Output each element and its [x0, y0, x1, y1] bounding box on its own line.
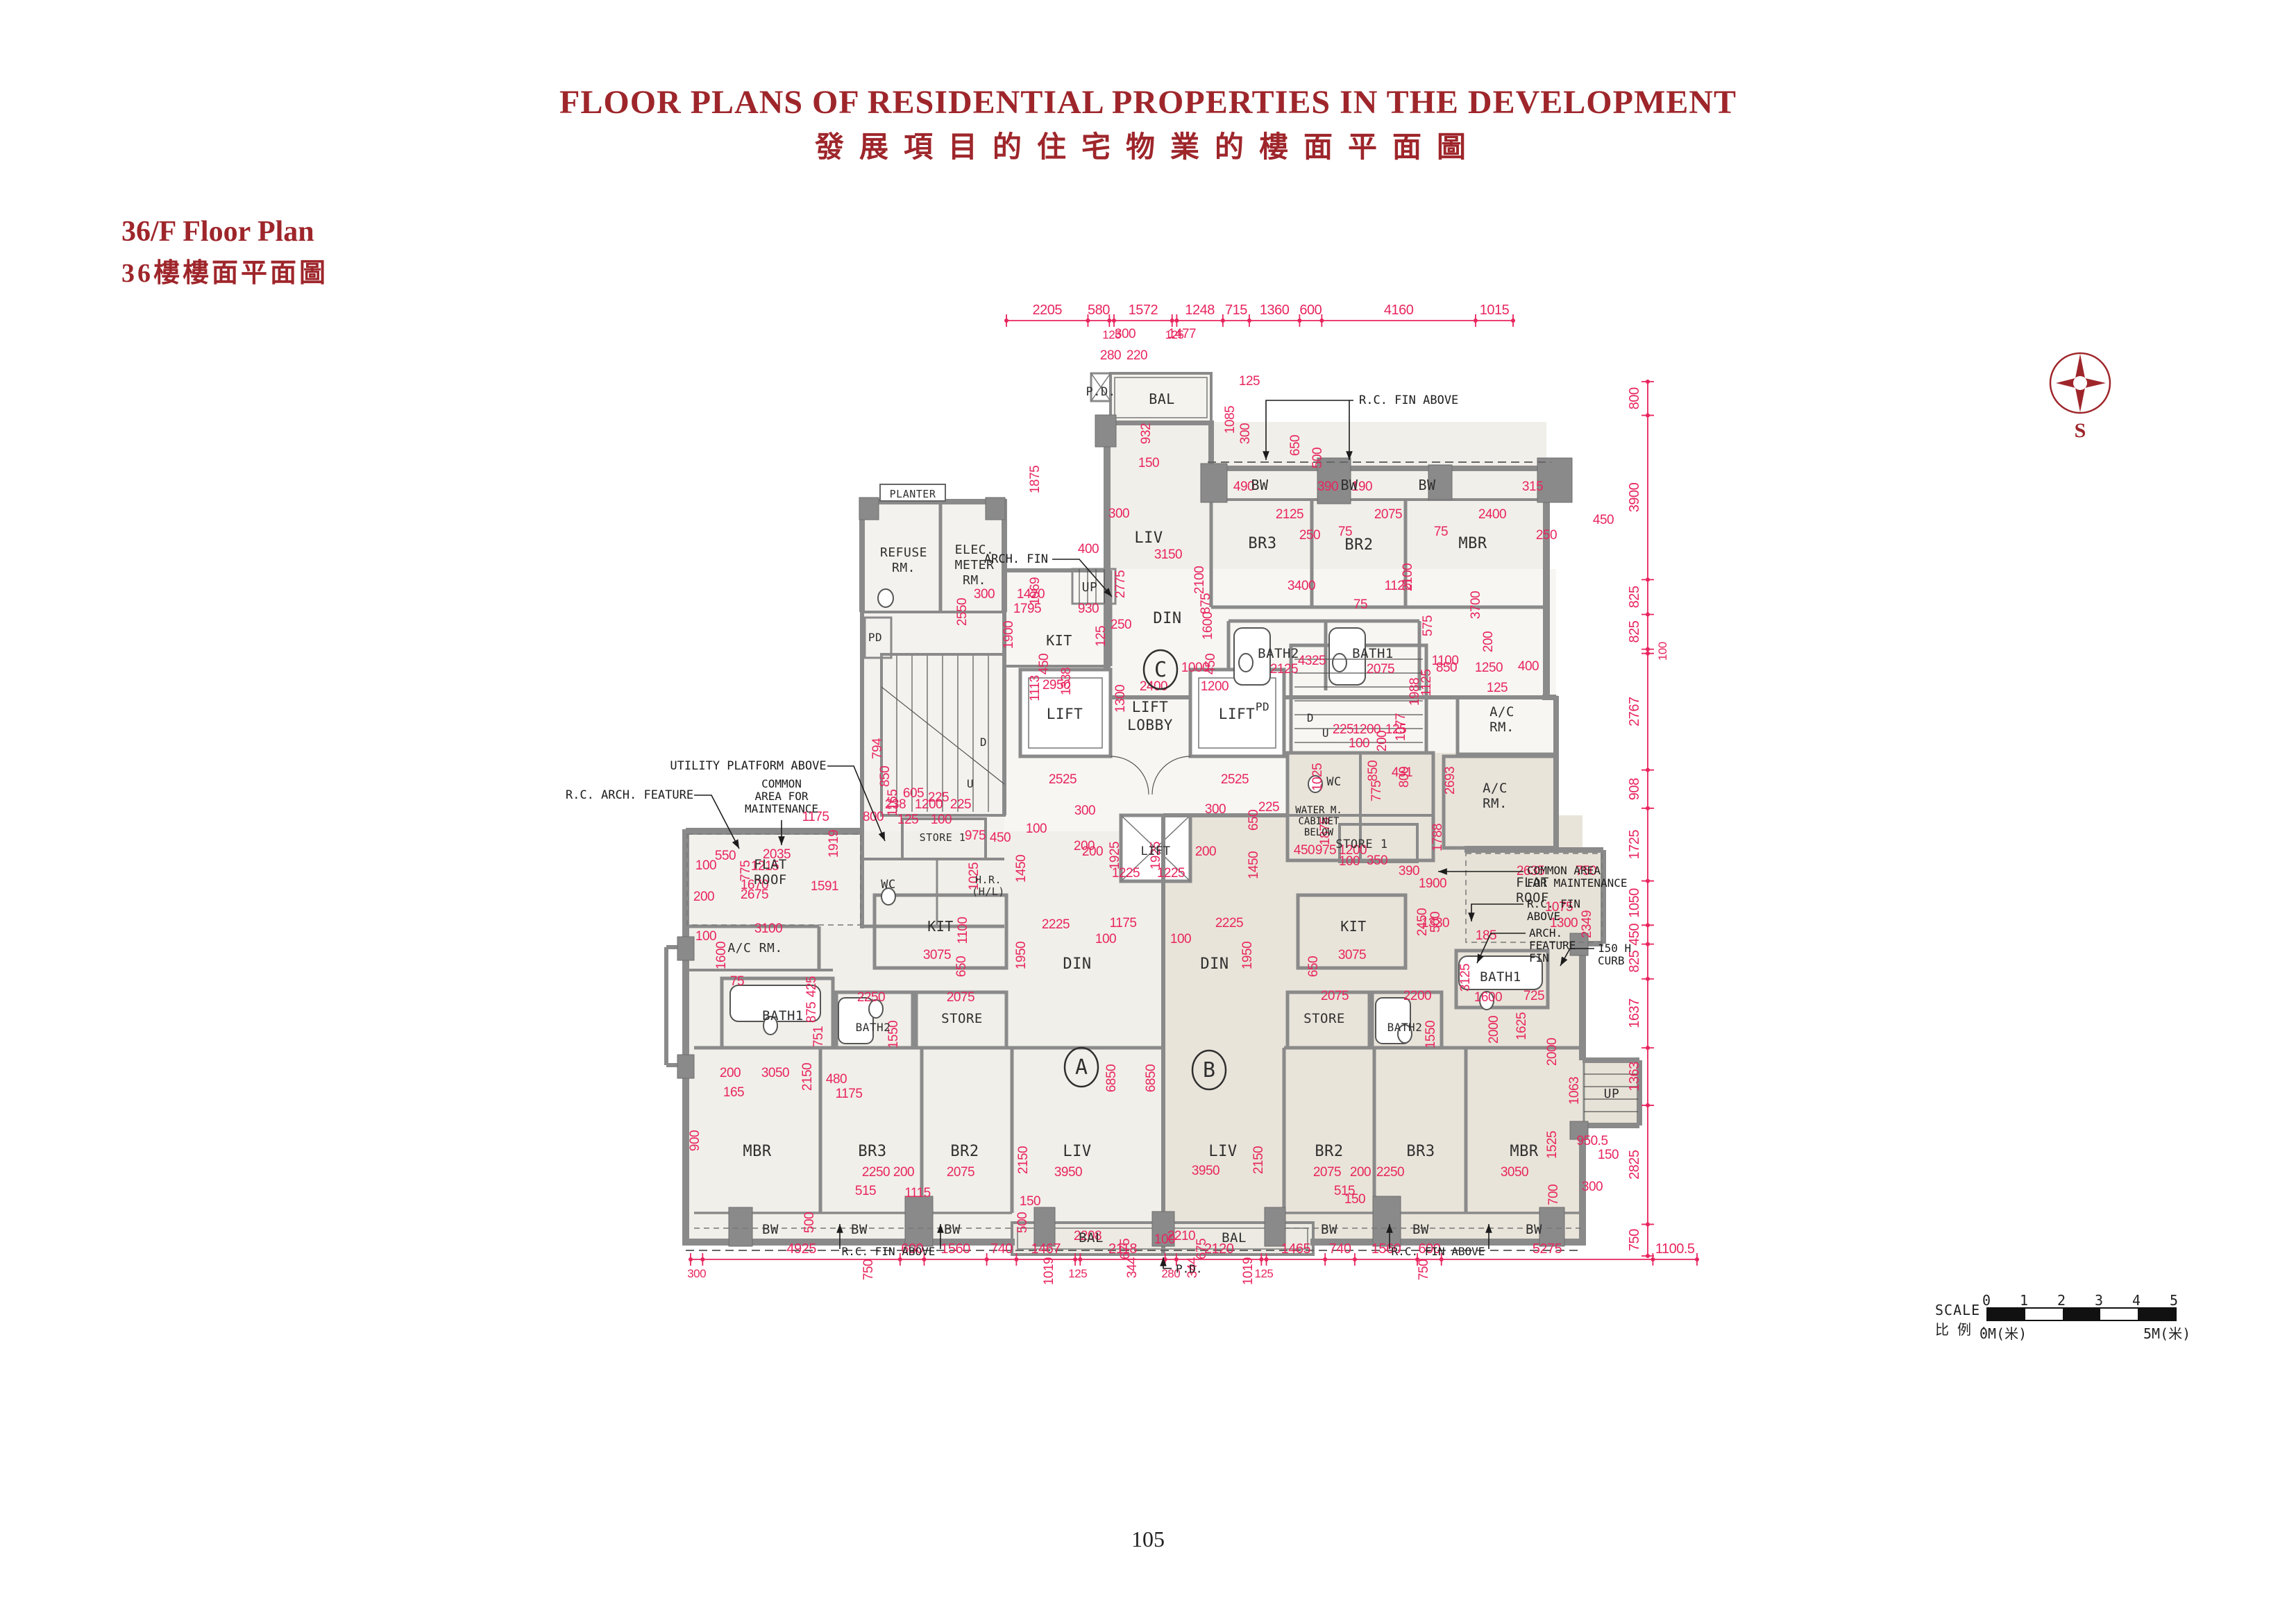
dim-label: 75	[1353, 597, 1367, 612]
dim-label: 220	[1126, 348, 1147, 363]
room-label-bw-c-1: BW	[1251, 477, 1269, 493]
svg-text:PD: PD	[1256, 700, 1269, 713]
svg-text:300: 300	[687, 1267, 706, 1280]
dim-label: 2775	[1113, 570, 1128, 598]
dim-label: 185	[1476, 928, 1496, 943]
svg-text:STORE 1: STORE 1	[1335, 838, 1387, 851]
dim-label: 300	[1582, 1180, 1603, 1194]
dim-label: 238	[885, 797, 906, 812]
dim-label: 1950	[1014, 942, 1029, 969]
svg-text:1248: 1248	[1185, 303, 1215, 318]
svg-text:COMMON AREA: COMMON AREA	[1527, 864, 1601, 877]
dim-label: 1795	[1013, 602, 1041, 616]
svg-text:DIN: DIN	[1063, 955, 1091, 973]
compass: S	[2041, 347, 2124, 444]
room-label-store-b: STORE	[1303, 1011, 1345, 1026]
dim-label: 390	[1399, 864, 1419, 878]
svg-text:BR2: BR2	[1315, 1143, 1343, 1160]
dim-label: 6850	[1144, 1064, 1158, 1092]
svg-text:BW: BW	[1412, 1222, 1429, 1237]
dim-label: 200	[1074, 839, 1095, 853]
dim-label: 2000	[1487, 1016, 1501, 1044]
dim-label: 1077	[1394, 713, 1408, 741]
scale-segment	[2138, 1309, 2175, 1320]
svg-text:KIT: KIT	[1046, 632, 1072, 649]
dim-label: 1591	[811, 879, 838, 894]
dim-label: 1100	[1432, 654, 1459, 668]
dim-label: 200	[693, 890, 714, 904]
dim-label: 250	[1536, 528, 1557, 543]
dim-label: 1100	[956, 917, 970, 944]
dim-label: 2250	[862, 1165, 890, 1180]
svg-text:2767: 2767	[1627, 697, 1642, 726]
svg-text:1637: 1637	[1627, 999, 1642, 1028]
dim-label: 2125	[1276, 507, 1303, 522]
svg-text:LIV: LIV	[1134, 529, 1163, 547]
room-label-mbr-b: MBR	[1510, 1143, 1538, 1160]
scale-bar: SCALE : 比 例 : 012345 0M(米) 5M(米)	[1935, 1292, 2227, 1341]
dim-label: 2000	[1545, 1038, 1560, 1066]
dim-label: 2525	[1221, 772, 1249, 787]
dim-label: 1420	[1017, 587, 1045, 602]
dim-label: 200	[1350, 1165, 1371, 1180]
svg-text:LIFT: LIFT	[1047, 706, 1083, 722]
svg-text:908: 908	[1627, 778, 1642, 800]
dim-label: 4325	[1298, 654, 1326, 668]
dim-label: 725	[1523, 989, 1544, 1003]
svg-text:LIFT: LIFT	[1141, 844, 1171, 858]
svg-text:RM.: RM.	[892, 561, 915, 575]
dim-label: 425	[804, 976, 819, 997]
room-label-hr-hl: H.R.(H/L)	[972, 874, 1005, 898]
dim-label: 100	[931, 813, 952, 827]
dim-label: 1085	[1223, 406, 1238, 434]
svg-text:3900: 3900	[1627, 482, 1642, 512]
svg-text:STORE: STORE	[1303, 1011, 1345, 1026]
svg-text:BAL: BAL	[1079, 1230, 1104, 1246]
dim-label: 1788	[1430, 824, 1445, 851]
room-label-bath1-b: BATH1	[1480, 969, 1521, 985]
dim-label: 750	[1417, 1259, 1431, 1280]
room-label-bw-c-2: BW	[1340, 477, 1358, 493]
room-label-ac-rm-a: A/C RM.	[727, 941, 782, 955]
scale-tick: 2	[2057, 1292, 2066, 1309]
dim-label: 2225	[1042, 917, 1070, 932]
dim-label: 100	[1026, 822, 1047, 836]
dim-label: 800	[1397, 767, 1412, 788]
svg-text:2825: 2825	[1627, 1150, 1642, 1180]
room-label-din-c: DIN	[1153, 610, 1181, 627]
room-label-br3-c: BR3	[1248, 535, 1276, 552]
room-label-stair-left-d: D	[980, 736, 987, 749]
dim-label: 1875	[1028, 466, 1043, 493]
dim-label: 100	[695, 858, 716, 873]
room-label-bal-a: BAL	[1079, 1230, 1104, 1246]
room-label-bw-a-1: BW	[762, 1222, 779, 1237]
dim-label: 2250	[857, 990, 885, 1005]
room-label-bw-b-3: BW	[1526, 1222, 1542, 1237]
dim-label: 3150	[1154, 547, 1182, 562]
scale-tick: 1	[2020, 1292, 2028, 1309]
room-label-mbr-c: MBR	[1458, 535, 1487, 552]
dim-label: 1063	[1567, 1077, 1582, 1105]
svg-text:R.C. ARCH. FEATURE: R.C. ARCH. FEATURE	[566, 788, 693, 802]
svg-text:R.C. FIN ABOVE: R.C. FIN ABOVE	[842, 1245, 936, 1258]
room-label-bal-c: BAL	[1149, 391, 1175, 407]
dim-label: 1225	[1157, 866, 1185, 881]
svg-text:BATH2: BATH2	[856, 1021, 891, 1034]
room-label-bw-b-2: BW	[1412, 1222, 1429, 1237]
dim-label: 450	[990, 831, 1011, 845]
room-label-lift-right: LIFT	[1219, 706, 1256, 722]
room-label-bath2-a: BATH2	[856, 1021, 891, 1034]
dim-label: 500	[1015, 1212, 1030, 1233]
svg-text:FIN: FIN	[1529, 951, 1549, 965]
scale-segment	[2100, 1309, 2138, 1320]
svg-text:MBR: MBR	[1510, 1143, 1538, 1160]
dim-label: 875	[1199, 593, 1213, 614]
dim-label: 300	[1115, 327, 1136, 341]
room-label-ac-rm-c2: A/CRM.	[1483, 781, 1508, 811]
svg-text:1363: 1363	[1627, 1062, 1642, 1091]
dim-label: 315	[1522, 479, 1543, 494]
svg-text:P.D.: P.D.	[1176, 1262, 1203, 1275]
dim-label: 2075	[1321, 989, 1349, 1003]
svg-text:A/C: A/C	[1489, 704, 1514, 720]
dim-label: 450	[1593, 513, 1614, 527]
svg-text:1467: 1467	[1031, 1241, 1061, 1257]
svg-text:R.C. FIN ABOVE: R.C. FIN ABOVE	[1392, 1245, 1485, 1258]
dim-label: 1450	[1014, 855, 1029, 883]
svg-text:1015: 1015	[1480, 303, 1510, 318]
svg-text:A: A	[1075, 1055, 1088, 1080]
room-label-stair-left-u: U	[967, 777, 974, 790]
svg-text:D: D	[1307, 711, 1314, 724]
scale-segment	[1988, 1309, 2025, 1320]
room-label-mbr-a: MBR	[743, 1143, 771, 1160]
dim-label: 850	[1366, 760, 1381, 781]
dim-label: 125	[897, 813, 918, 827]
room-label-flat-roof-a: FLATROOF	[754, 857, 787, 887]
svg-text:BW: BW	[1251, 477, 1269, 493]
dim-label: 1019	[1042, 1257, 1056, 1285]
dim-label: 3700	[1469, 591, 1483, 619]
dim-label: 450	[1204, 654, 1218, 674]
dim-label: 225	[1258, 800, 1279, 815]
svg-text:4925: 4925	[786, 1241, 816, 1257]
dim-label: 450	[1294, 843, 1315, 858]
svg-text:1465: 1465	[1281, 1241, 1311, 1257]
document-page: FLOOR PLANS OF RESIDENTIAL PROPERTIES IN…	[0, 0, 2296, 1623]
dim-label: 932	[1139, 423, 1154, 444]
dim-label: 1900	[1419, 876, 1446, 891]
floor-plan-title: 36/F Floor Plan	[121, 215, 314, 248]
room-label-bw-a-3: BW	[944, 1222, 961, 1237]
dim-label: 300	[1205, 802, 1226, 817]
room-label-pd-left: PD	[868, 631, 882, 644]
dim-label: 6850	[1104, 1064, 1119, 1092]
dim-label: 300	[974, 587, 995, 602]
svg-text:PLANTER: PLANTER	[890, 488, 936, 500]
svg-text:600: 600	[1299, 303, 1322, 318]
svg-text:PD: PD	[868, 631, 882, 644]
dim-label: 2950	[1043, 678, 1070, 692]
dim-label: 2450	[1415, 908, 1430, 936]
dim-label: 3075	[1338, 948, 1366, 962]
svg-text:R.C. FIN: R.C. FIN	[1527, 897, 1580, 910]
svg-text:KIT: KIT	[1340, 918, 1367, 935]
dim-label: 200	[1195, 844, 1216, 859]
svg-text:BAL: BAL	[1222, 1230, 1247, 1246]
scale-right-label: 5M(米)	[2143, 1323, 2191, 1343]
dim-label: 1300	[1113, 685, 1128, 713]
dim-label: 2150	[800, 1063, 815, 1091]
svg-text:KIT: KIT	[927, 918, 954, 935]
dim-label: 350	[1367, 853, 1387, 868]
dim-label: 575	[1421, 615, 1435, 636]
scale-segment	[2025, 1309, 2063, 1320]
dim-label: 900	[688, 1130, 702, 1151]
scale-segment	[2063, 1309, 2100, 1320]
dim-label: 3950	[1054, 1165, 1082, 1180]
svg-text:750: 750	[1627, 1229, 1642, 1251]
dim-label: 1600	[1474, 990, 1502, 1005]
room-label-up-b: UP	[1604, 1087, 1620, 1101]
dim-label: 100	[1170, 932, 1191, 946]
svg-text:125: 125	[1254, 1267, 1273, 1280]
dim-label: 2125	[1270, 662, 1298, 677]
svg-text:BW: BW	[944, 1222, 961, 1237]
room-label-up-c: UP	[1082, 580, 1098, 595]
dim-label: 500	[802, 1212, 817, 1233]
scale-ticks: 012345	[1986, 1292, 2175, 1303]
dim-label: 794	[870, 738, 885, 759]
room-label-lift-left: LIFT	[1047, 706, 1083, 722]
svg-text:WC: WC	[1326, 775, 1341, 789]
dim-label: 1200	[1201, 679, 1229, 694]
svg-text:CURB: CURB	[1598, 954, 1625, 967]
dim-label: 225	[1333, 722, 1353, 737]
dim-label: 165	[723, 1085, 744, 1100]
dim-label: 950.5	[1576, 1134, 1607, 1148]
svg-text:BW: BW	[1418, 477, 1436, 493]
dim-label: 100	[1095, 932, 1116, 946]
svg-text:BW: BW	[762, 1222, 779, 1237]
svg-text:A/C: A/C	[1483, 781, 1508, 796]
svg-text:BATH1: BATH1	[1352, 646, 1394, 661]
dim-label: 2200	[1403, 989, 1431, 1003]
room-label-planter: PLANTER	[890, 488, 936, 500]
room-label-bw-c-3: BW	[1418, 477, 1436, 493]
dim-label: 775	[1369, 781, 1384, 801]
dim-label: 75	[1434, 525, 1448, 539]
dim-label: 100	[695, 929, 716, 944]
dim-label: 675	[1195, 1239, 1209, 1259]
svg-text:1100.5: 1100.5	[1655, 1241, 1695, 1257]
svg-text:B: B	[1203, 1058, 1215, 1082]
dim-label: 2525	[1049, 772, 1077, 787]
dim-label: 250	[1111, 618, 1131, 632]
scale-tick: 5	[2170, 1292, 2178, 1309]
dim-label: 550	[715, 849, 736, 863]
dim-label: 1175	[1110, 916, 1137, 931]
room-label-bath1-c: BATH1	[1352, 646, 1394, 661]
dim-label: 975	[965, 829, 986, 843]
dim-label: 1988	[1408, 678, 1422, 706]
svg-text:DIN: DIN	[1153, 610, 1181, 627]
room-label-bal-b: BAL	[1222, 1230, 1247, 1246]
dim-label: 975	[1315, 843, 1336, 858]
room-label-lift-middle: LIFT	[1141, 844, 1171, 858]
dim-label: 2075	[1367, 662, 1394, 677]
room-label-wc-left: WC	[881, 878, 895, 892]
svg-text:LIV: LIV	[1063, 1143, 1091, 1160]
dim-label: 1250	[1475, 661, 1503, 675]
svg-text:1725: 1725	[1627, 830, 1642, 860]
dim-label: 400	[1518, 659, 1539, 674]
svg-text:U: U	[967, 777, 974, 790]
svg-text:2205: 2205	[1032, 303, 1062, 318]
room-label-liv-b: LIV	[1208, 1143, 1237, 1160]
svg-text:REFUSE: REFUSE	[880, 545, 927, 560]
room-label-wc-right: WC	[1326, 775, 1341, 789]
dim-label: 1600	[714, 942, 729, 969]
room-label-kit-b: KIT	[1340, 918, 1367, 935]
dim-label: 250	[1299, 528, 1320, 543]
dim-label: 3400	[1288, 579, 1315, 593]
svg-text:RM.: RM.	[963, 573, 986, 588]
svg-text:UP: UP	[1082, 580, 1098, 595]
dim-label: 300	[1074, 804, 1095, 818]
room-label-br2-a: BR2	[950, 1143, 979, 1160]
dim-label: 2100	[1192, 566, 1207, 594]
dim-label: 1525	[1545, 1131, 1560, 1159]
compass-south-label: S	[2041, 419, 2120, 443]
dim-label: 150	[1598, 1148, 1619, 1162]
room-label-bath2-b: BATH2	[1387, 1021, 1423, 1034]
svg-text:DIN: DIN	[1200, 955, 1229, 973]
floor-plan: 2205580125157212512487151360600416010153…	[562, 298, 1714, 1291]
svg-text:1360: 1360	[1260, 303, 1290, 318]
room-label-stair-right-u: U	[1322, 726, 1329, 740]
svg-text:WATER M.: WATER M.	[1295, 805, 1342, 816]
scale-tick: 4	[2132, 1292, 2141, 1309]
dim-label: 650	[1306, 956, 1321, 977]
dim-label: 2675	[741, 887, 768, 902]
dim-label: 2075	[1313, 1165, 1341, 1180]
dim-label: 200	[1481, 631, 1496, 652]
dim-label: 3050	[1501, 1165, 1528, 1180]
dim-label: 150	[1344, 1192, 1365, 1207]
dim-label: 1625	[1514, 1012, 1529, 1040]
room-label-store1-core: STORE 1	[1335, 838, 1387, 851]
dim-label: 400	[1078, 542, 1099, 556]
dim-label: 3125	[1458, 964, 1473, 992]
dim-label: 450	[1037, 654, 1052, 674]
svg-text:1560: 1560	[940, 1241, 970, 1257]
svg-text:CABINET: CABINET	[1298, 816, 1340, 827]
svg-text:A/C RM.: A/C RM.	[727, 941, 782, 955]
svg-text:BR3: BR3	[1406, 1143, 1435, 1160]
room-label-kit-a: KIT	[927, 918, 954, 935]
dim-label: 1950	[1240, 942, 1255, 969]
room-label-bw-a-2: BW	[851, 1222, 868, 1237]
dim-label: 1175	[836, 1087, 863, 1101]
dim-label: 2150	[1016, 1146, 1031, 1174]
room-label-store1-a: STORE 1	[920, 831, 966, 844]
room-label-kit-c: KIT	[1046, 632, 1072, 649]
svg-text:BATH1: BATH1	[1480, 969, 1521, 985]
dim-label: 500	[1310, 448, 1325, 468]
svg-text:MBR: MBR	[743, 1143, 771, 1160]
dim-label: 480	[826, 1072, 847, 1087]
dim-label: 125	[1239, 374, 1260, 389]
dim-label: 150	[1138, 456, 1159, 470]
scale-left-label: 0M(米)	[1980, 1323, 2027, 1343]
dim-label: 675	[1118, 1239, 1133, 1259]
svg-text:(H/L): (H/L)	[972, 885, 1005, 898]
svg-text:ARCH. FIN: ARCH. FIN	[984, 552, 1048, 566]
svg-text:740: 740	[1329, 1241, 1351, 1257]
svg-text:RM.: RM.	[1489, 720, 1514, 735]
svg-text:715: 715	[1225, 303, 1247, 318]
svg-text:FLAT: FLAT	[754, 857, 787, 872]
dim-label: 100	[1339, 854, 1360, 869]
room-label-br3-b: BR3	[1406, 1143, 1435, 1160]
dim-label: 751	[811, 1026, 826, 1047]
room-label-br2-b: BR2	[1315, 1143, 1343, 1160]
dim-label: 280	[1100, 348, 1121, 363]
svg-text:LOBBY: LOBBY	[1127, 717, 1173, 733]
svg-text:BATH2: BATH2	[1387, 1021, 1423, 1034]
svg-text:BAL: BAL	[1149, 391, 1175, 407]
svg-text:BATH1: BATH1	[762, 1008, 804, 1023]
dim-label: 1225	[1112, 866, 1140, 881]
svg-text:BATH2: BATH2	[1258, 646, 1299, 661]
dim-label: 125	[1094, 626, 1108, 647]
floor-plan-title-chinese: 36樓樓面平面圖	[121, 251, 328, 289]
dim-label: 3075	[923, 948, 951, 962]
dim-label: 1019	[1241, 1257, 1256, 1285]
dim-label: 515	[855, 1184, 876, 1198]
dim-label: 1477	[1168, 327, 1196, 341]
svg-text:BR2: BR2	[950, 1143, 979, 1160]
dim-label: 390	[1317, 479, 1338, 494]
svg-text:825: 825	[1627, 620, 1642, 643]
dimension-chain-0: 220558012515721251248715136060041601015	[1004, 303, 1515, 341]
dim-label: 650	[954, 956, 969, 977]
dim-label: 2250	[1376, 1165, 1404, 1180]
room-label-br3-a: BR3	[858, 1143, 886, 1160]
svg-text:C: C	[1154, 658, 1167, 682]
svg-text:LIV: LIV	[1208, 1143, 1237, 1160]
room-label-liv-c: LIV	[1134, 529, 1163, 547]
svg-text:BR3: BR3	[1248, 535, 1276, 552]
svg-text:580: 580	[1088, 303, 1110, 318]
svg-text:AREA FOR: AREA FOR	[754, 790, 808, 803]
dim-label: 2075	[947, 1165, 974, 1180]
scale-tick: 3	[2095, 1292, 2103, 1309]
room-label-bath1-a: BATH1	[762, 1008, 804, 1023]
svg-text:COMMON: COMMON	[761, 777, 802, 790]
svg-text:U: U	[1322, 726, 1329, 740]
svg-text:STORE: STORE	[941, 1011, 983, 1026]
dim-label: 3100	[754, 921, 782, 936]
dim-label: 200	[893, 1165, 914, 1180]
svg-text:R.C. FIN ABOVE: R.C. FIN ABOVE	[1359, 393, 1458, 407]
svg-text:ABOVE: ABOVE	[1527, 910, 1560, 923]
dim-label: 150	[1020, 1194, 1040, 1209]
